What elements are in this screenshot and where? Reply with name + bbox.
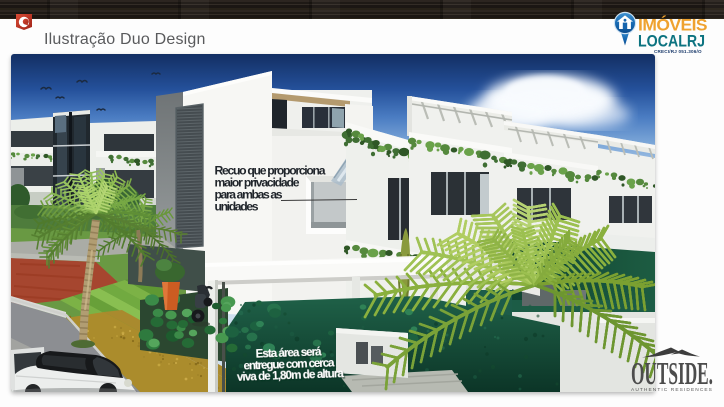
svg-text:LOCALRJ: LOCALRJ [638,32,705,51]
svg-text:OUTSIDE.: OUTSIDE. [631,355,713,391]
svg-text:unidades: unidades [215,200,259,214]
svg-text:AUTHENTIC RESIDENCES: AUTHENTIC RESIDENCES [631,387,713,393]
svg-text:CRECI/RJ 051.306/O: CRECI/RJ 051.306/O [654,49,702,54]
